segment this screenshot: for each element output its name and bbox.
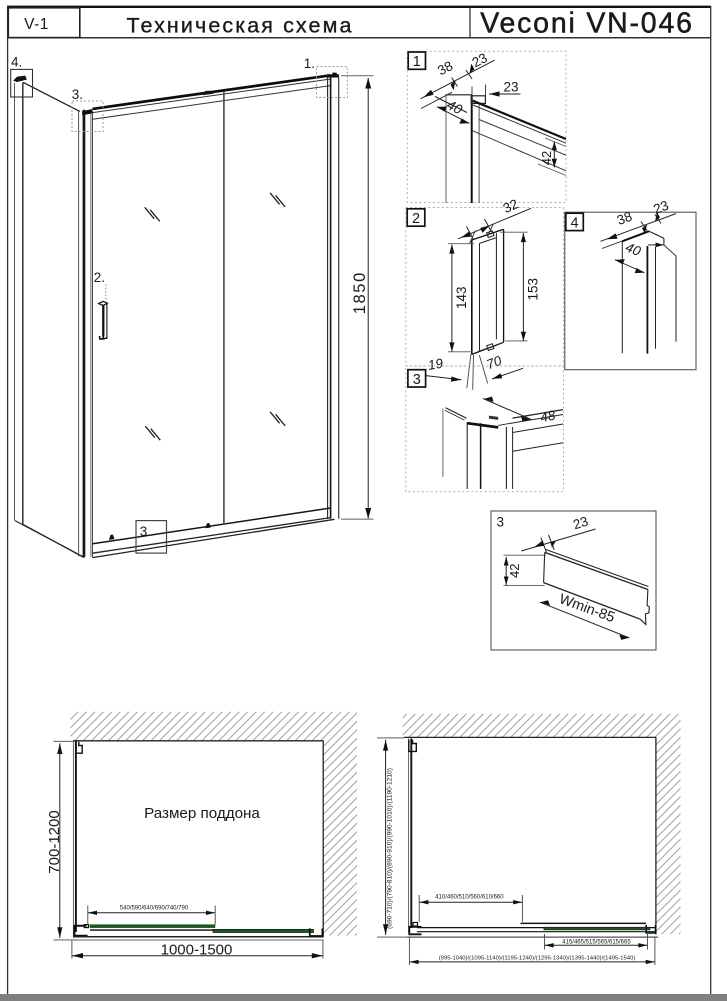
svg-text:3.: 3. (72, 87, 83, 102)
svg-text:Размер поддона: Размер поддона (144, 805, 260, 822)
svg-text:(995-1040)/(1095-1140)/(1195-1: (995-1040)/(1095-1140)/(1195-1240)/(1295… (439, 956, 636, 962)
svg-text:415/465/515/565/615/665: 415/465/515/565/615/665 (562, 940, 631, 946)
svg-text:V-1: V-1 (24, 16, 49, 33)
svg-text:19: 19 (427, 355, 445, 372)
svg-text:3: 3 (140, 524, 148, 539)
svg-text:23: 23 (503, 79, 518, 94)
svg-text:1: 1 (413, 54, 421, 70)
svg-text:1000-1500: 1000-1500 (161, 942, 233, 959)
svg-text:4.: 4. (11, 55, 22, 70)
svg-text:1.: 1. (304, 56, 315, 71)
svg-text:Техническая схема: Техническая схема (126, 13, 353, 37)
svg-text:3: 3 (413, 372, 421, 388)
svg-text:42: 42 (539, 151, 554, 165)
svg-text:42: 42 (507, 564, 522, 578)
svg-text:700-1200: 700-1200 (46, 810, 63, 873)
svg-text:1850: 1850 (351, 271, 369, 314)
svg-text:143: 143 (454, 286, 469, 309)
svg-text:(690-710)/(790-810)/(890-910)/: (690-710)/(790-810)/(890-910)/(990-1010)… (387, 768, 394, 929)
svg-text:410/460/510/560/610/660: 410/460/510/560/610/660 (435, 895, 504, 901)
svg-text:153: 153 (526, 278, 541, 301)
svg-text:540/590/640/690/740/790: 540/590/640/690/740/790 (120, 905, 189, 911)
svg-text:4: 4 (570, 215, 578, 231)
svg-text:Veconi VN-046: Veconi VN-046 (480, 8, 694, 40)
svg-text:3: 3 (497, 515, 505, 530)
svg-text:2.: 2. (94, 270, 105, 285)
svg-text:2: 2 (412, 211, 420, 227)
